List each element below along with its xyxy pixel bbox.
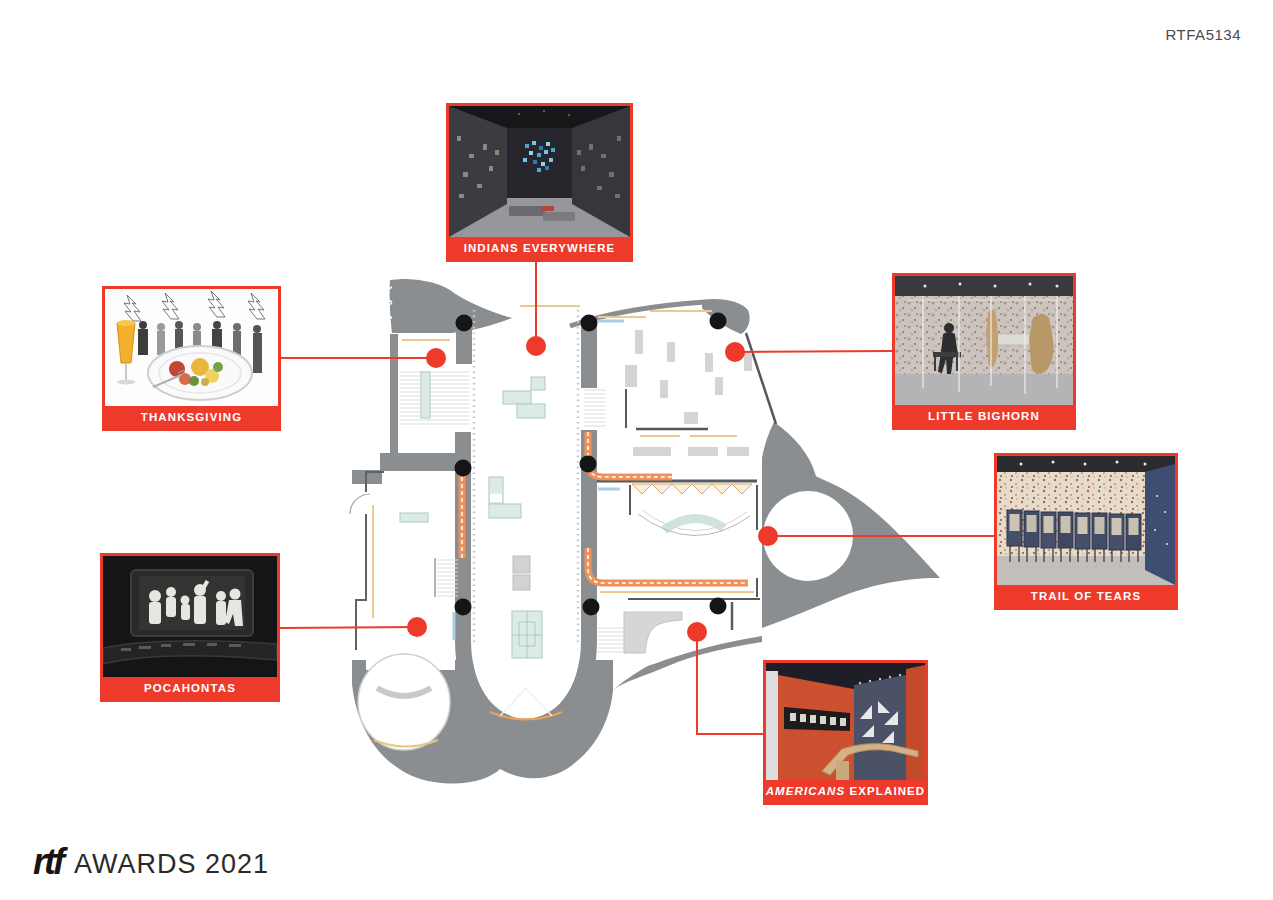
quilt-partition [854,675,906,780]
dinner-plate [148,346,252,400]
oval-theater-floor [358,654,450,750]
label-text: EXPLAINED [845,785,925,797]
callout-trail-of-tears[interactable]: TRAIL OF TEARS [994,453,1178,610]
photo-pocahontas [103,556,277,677]
label-thanksgiving: THANKSGIVING [105,406,278,428]
blue-wall [1145,464,1175,585]
label-text: POCAHONTAS [144,682,236,694]
room-pocahontas-floor [366,468,455,670]
curtain-scallops [632,484,752,494]
label-text-italic: AMERICANS [766,785,846,797]
photo-little-bighorn [895,276,1073,405]
photo-trail-of-tears [997,456,1175,585]
callout-americans-explained[interactable]: AMERICANS EXPLAINED [763,660,928,805]
label-text: LITTLE BIGHORN [928,410,1040,422]
label-pocahontas: POCAHONTAS [103,677,277,699]
label-indians-everywhere: INDIANS EVERYWHERE [449,237,630,259]
mint-furniture-notch [490,494,502,502]
callout-indians-everywhere[interactable]: INDIANS EVERYWHERE [446,103,633,262]
rtf-logo: rtf [33,842,62,880]
callout-pocahontas[interactable]: POCAHONTAS [100,553,280,702]
label-little-bighorn: LITTLE BIGHORN [895,405,1073,427]
connector-pocahontas [280,627,417,628]
connector-little-bighorn [735,351,892,352]
bighorn-slant-wall [746,333,776,424]
label-text: INDIANS EVERYWHERE [464,242,616,254]
room-thanksgiving-bottom-wall [380,453,458,471]
label-trail-of-tears: TRAIL OF TEARS [997,585,1175,607]
photo-americans-explained [766,663,925,780]
photo-thanksgiving [105,289,278,406]
floor-plan-diagram [0,0,1273,900]
label-text: THANKSGIVING [141,411,242,423]
room-thanksgiving-left-wall [390,334,398,456]
label-text: TRAIL OF TEARS [1031,590,1141,602]
callout-little-bighorn[interactable]: LITTLE BIGHORN [892,273,1076,430]
gray-kiosk [513,556,530,590]
callout-thanksgiving[interactable]: THANKSGIVING [102,286,281,431]
awards-title: AWARDS 2021 [74,849,269,880]
bighorn-corner-wall [702,299,750,334]
footer-brand: rtf AWARDS 2021 [33,843,269,880]
presentation-board: RTFA5134 [0,0,1273,900]
photo-indians-everywhere [449,106,630,237]
label-americans-explained: AMERICANS EXPLAINED [766,780,925,802]
